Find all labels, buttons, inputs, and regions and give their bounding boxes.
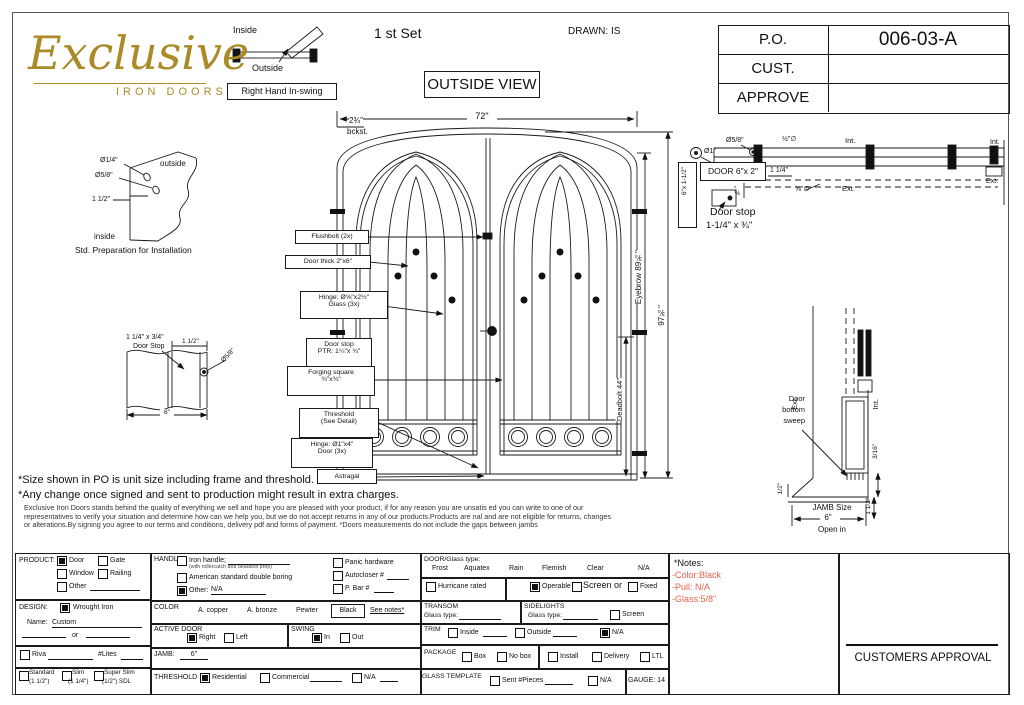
nobox-label: No box — [509, 653, 531, 661]
autocloser-field[interactable] — [387, 578, 409, 580]
commercial-label: Commercial — [272, 674, 309, 682]
checkbox-railing[interactable] — [98, 569, 108, 579]
head-ext-label-2: Ext. — [986, 178, 998, 186]
checkbox-gate[interactable] — [98, 556, 108, 566]
checkbox-product-other[interactable] — [57, 582, 67, 592]
note-para-1: Exclusive Iron Doors stands behind the q… — [24, 504, 583, 512]
checkbox-door[interactable] — [57, 556, 67, 566]
callout-door-stop: Door stop PTR: 1¼"x ¾" — [306, 338, 372, 368]
callout-hinge-main: Hinge: Ø1"x4" Door (3x) — [291, 438, 373, 468]
riva-label: Riva — [32, 651, 46, 659]
sill-int-label: Int. — [872, 399, 880, 409]
signature-line[interactable] — [846, 644, 998, 646]
door-option-label: Door — [69, 557, 84, 565]
riva-field[interactable] — [48, 658, 93, 660]
jamb-value[interactable]: 6" — [180, 651, 208, 660]
color-black-selected[interactable]: Black — [331, 604, 365, 618]
checkbox-handle-other[interactable] — [177, 586, 187, 596]
sill-dim-316: 3/16" — [873, 444, 880, 459]
cust-label: CUST. — [718, 61, 828, 78]
notes-title: *Notes: — [674, 558, 704, 568]
sill-dim-112: 1 1/2" — [866, 498, 873, 515]
pbar-field[interactable] — [374, 591, 394, 593]
head-int-label-2: Int. — [990, 139, 1000, 147]
head-door-label: DOOR 6"x 2" — [700, 162, 766, 181]
checkbox-fixed[interactable] — [628, 582, 638, 592]
checkbox-residential[interactable] — [200, 673, 210, 683]
checkbox-hurricane[interactable] — [426, 582, 436, 592]
jamb-label: JAMB: — [154, 651, 175, 659]
dim-eyebrow: Eyebrow 89¾" — [635, 250, 643, 304]
color-pewter[interactable]: Pewter — [296, 607, 318, 615]
checkbox-install[interactable] — [548, 652, 558, 662]
prep-dim-half: 1 1/2" — [92, 196, 110, 204]
note-pull: -Pull: N/A — [672, 582, 710, 592]
prep-dia-fiveeighth: Ø5/8" — [95, 172, 113, 180]
checkbox-box[interactable] — [462, 652, 472, 662]
wrought-iron-label: Wrought Iron — [73, 604, 113, 612]
box-label: Box — [474, 653, 486, 661]
handle-other-value[interactable]: N/A — [211, 586, 266, 595]
backset-caption: bckst. — [347, 128, 368, 137]
head-dia-58b: ⅝"∅ — [795, 186, 809, 194]
backset-dim: 2¾" — [349, 117, 363, 126]
sill-jamb-size-label: JAMB Size — [800, 504, 864, 513]
color-label: COLOR — [154, 604, 179, 612]
stopdetail-name: Door Stop — [133, 343, 165, 351]
sill-sweep-label: Door bottom sweep — [765, 393, 805, 426]
callout-door-thick: Door thick 2"x6" — [285, 255, 371, 269]
stopdetail-width: 6" — [160, 409, 174, 416]
product-other-label: Other — [69, 583, 87, 591]
drawn-label: DRAWN: IS — [568, 26, 620, 37]
threshold-na-field[interactable] — [380, 680, 398, 682]
checkbox-trim-na[interactable] — [600, 628, 610, 638]
trim-na-label: N/A — [612, 629, 624, 637]
right-label: Right — [199, 634, 215, 642]
checkbox-screen[interactable] — [572, 582, 582, 592]
checkbox-trim-outside[interactable] — [515, 628, 525, 638]
left-label: Left — [236, 634, 248, 642]
design-or-label: or — [72, 632, 78, 640]
dim-deadbolt: Deadbolt 44" — [616, 378, 624, 421]
trim-outside-label: Outside — [527, 629, 551, 637]
in-label: In — [324, 634, 330, 642]
install-label: Install — [560, 653, 578, 661]
checkbox-nobox[interactable] — [497, 652, 507, 662]
glass-template-label: GLASS TEMPLATE — [422, 673, 482, 681]
note-glass: -Glass:5/8" — [672, 594, 716, 604]
head-doorstop-size: 1-1/4" x ¾" — [706, 221, 752, 232]
sent-pieces-field[interactable] — [545, 683, 573, 685]
slim-label: Slim — [72, 669, 84, 676]
swing-inside-label: Inside — [233, 25, 257, 35]
checkbox-in[interactable] — [312, 633, 322, 643]
gauge-label: GAUGE: 14 — [628, 677, 665, 685]
checkbox-iron-handle[interactable] — [177, 556, 187, 566]
glass-flemish[interactable]: Flemish — [542, 565, 567, 573]
transom-label: TRANSOM — [424, 603, 458, 611]
threshold-label: THRESHOLD — [154, 674, 197, 682]
callout-hinge-small: Hinge: Ø⅝"x2½" Glass (3x) — [300, 291, 388, 319]
elevation-width-dim: 72" — [467, 111, 497, 121]
handle-other-label: Other: — [189, 587, 208, 595]
glass-type-label: DOOR/Glass type: — [424, 556, 480, 564]
checkbox-panic[interactable] — [333, 558, 343, 568]
checkbox-pbar[interactable] — [333, 584, 343, 594]
transom-glass-field[interactable] — [459, 618, 501, 620]
color-copper[interactable]: A. copper — [198, 607, 228, 615]
approval-box — [838, 553, 1010, 695]
swing-outside-label: Outside — [252, 63, 283, 73]
sidelights-glass-field[interactable] — [563, 618, 598, 620]
design-name-value[interactable]: Custom — [52, 619, 142, 628]
sidelights-glass-label: Glass type: — [528, 612, 562, 620]
ltl-label: LTL — [652, 653, 664, 661]
head-dim-114: 1 1/4" — [770, 167, 788, 175]
checkbox-right[interactable] — [187, 633, 197, 643]
sent-pieces-label: Sent #Pieces — [502, 677, 543, 685]
operable-label: Operable — [542, 583, 571, 591]
head-int-label: Int. — [845, 137, 855, 145]
checkbox-out[interactable] — [340, 633, 350, 643]
spec-sheet: Exclusive IRON DOORS Inside Outside Righ… — [0, 0, 1024, 705]
head-ext-label: Ext. — [842, 185, 855, 193]
callout-threshold: Threshold (See Detail) — [299, 408, 379, 438]
logo-script: Exclusive — [28, 28, 249, 80]
logo-subtitle: IRON DOORS — [116, 86, 227, 98]
checkbox-threshold-na[interactable] — [352, 673, 362, 683]
note-changes: *Any change once signed and sent to prod… — [18, 489, 399, 501]
customers-approval-label: CUSTOMERS APPROVAL — [838, 652, 1008, 665]
checkbox-wrought-iron[interactable] — [60, 603, 70, 613]
window-option-label: Window — [69, 570, 94, 578]
hurricane-label: Hurricane rated — [438, 583, 486, 591]
super-slim-sub: (1/2") SDL — [102, 678, 131, 685]
head-dia-58: Ø5/8" — [726, 137, 744, 145]
glass-na[interactable]: N/A — [638, 565, 650, 573]
glass-clear[interactable]: Clear — [587, 565, 604, 573]
prep-caption: Std. Preparation for Installation — [75, 246, 192, 256]
gate-option-label: Gate — [110, 557, 125, 565]
glass-aquatex[interactable]: Aquatex — [464, 565, 490, 573]
po-value: 006-03-A — [828, 29, 1008, 50]
product-other-field[interactable] — [90, 589, 140, 591]
approve-label: APPROVE — [718, 90, 828, 107]
pbar-label: P. Bar # — [345, 585, 369, 593]
head-dia-1: Ø1" — [704, 148, 716, 156]
lites-field[interactable] — [121, 658, 143, 660]
screen-or-label: Screen or — [583, 580, 622, 590]
checkbox-commercial[interactable] — [260, 673, 270, 683]
glass-rain[interactable]: Rain — [509, 565, 523, 573]
checkbox-american-boring[interactable] — [177, 573, 187, 583]
checkbox-sent-pieces[interactable] — [490, 676, 500, 686]
fixed-label: Fixed — [640, 583, 657, 591]
glass-frost[interactable]: Frost — [432, 565, 448, 573]
callout-flushbolt: Flushbolt (2x) — [295, 230, 369, 244]
color-bronze[interactable]: A. bronze — [247, 607, 277, 615]
checkbox-riva[interactable] — [20, 650, 30, 660]
color-see-notes[interactable]: See notes* — [370, 607, 404, 615]
standard-label: Standard — [29, 669, 55, 676]
design-name-label: Name: — [27, 619, 48, 627]
sidelight-screen-label: Screen — [622, 611, 644, 619]
product-label: PRODUCT: — [19, 557, 55, 565]
stopdetail-size: 1 1/4" x 3/4" — [126, 334, 164, 342]
prep-outside: outside — [160, 160, 186, 169]
sidelights-label: SIDELIGHTS — [524, 603, 564, 611]
note-size: *Size shown in PO is unit size including… — [18, 474, 314, 486]
railing-option-label: Railing — [110, 570, 131, 578]
trim-outside-field[interactable] — [553, 635, 577, 637]
prep-dia-quarter: Ø1/4" — [100, 157, 118, 165]
out-label: Out — [352, 634, 363, 642]
checkbox-delivery[interactable] — [592, 652, 602, 662]
lites-label: #Lites — [98, 651, 117, 659]
gt-na-label: N/A — [600, 677, 612, 685]
autocloser-label: Autocloser # — [345, 572, 384, 580]
checkbox-gt-na[interactable] — [588, 676, 598, 686]
design-label: DESIGN: — [19, 604, 48, 612]
checkbox-autocloser[interactable] — [333, 571, 343, 581]
sill-open-in-label: Open in — [800, 526, 864, 535]
sill-jamb-size-value: 6" — [818, 514, 838, 523]
swing-type-label: Right Hand In-swing — [227, 83, 337, 100]
prep-inside: inside — [94, 233, 115, 242]
checkbox-window[interactable] — [57, 569, 67, 579]
callout-astragal: Astragal — [317, 469, 377, 484]
logo-underline — [34, 83, 206, 84]
trim-inside-label: Inside — [460, 629, 479, 637]
trim-label: TRIM — [424, 626, 441, 634]
po-label: P.O. — [718, 32, 828, 49]
checkbox-left[interactable] — [224, 633, 234, 643]
trim-inside-field[interactable] — [483, 635, 507, 637]
checkbox-trim-inside[interactable] — [448, 628, 458, 638]
head-dim-38: ⅜" — [735, 186, 742, 195]
delivery-label: Delivery — [604, 653, 629, 661]
package-label: PACKAGE — [424, 649, 456, 657]
slim-sub: (1 1/4") — [68, 678, 88, 685]
head-jamb-label: 6"x 1-1/2" — [682, 167, 689, 195]
stopdetail-dim1: 1 1/2" — [182, 338, 199, 345]
head-dia-half: ½"∅ — [782, 136, 796, 144]
checkbox-standard[interactable] — [19, 671, 29, 681]
commercial-field[interactable] — [310, 680, 342, 682]
checkbox-operable[interactable] — [530, 582, 540, 592]
callout-forging: Forging square ¾"x¾" — [287, 366, 375, 396]
set-label: 1 st Set — [374, 26, 421, 42]
dim-height: 97¾" — [658, 305, 666, 326]
residential-label: Residential — [212, 674, 247, 682]
checkbox-ltl[interactable] — [640, 652, 650, 662]
american-boring-label: American standard double boring — [189, 574, 292, 582]
view-title: OUTSIDE VIEW — [424, 71, 540, 98]
threshold-na-label: N/A — [364, 674, 376, 682]
super-slim-label: Super Slim — [104, 669, 135, 676]
sill-dim-12: 1/2" — [778, 483, 785, 494]
panic-label: Panic hardware — [345, 559, 394, 567]
note-color: -Color:Black — [672, 570, 721, 580]
iron-handle-sub: (with rollercatch and deadbolt prep) — [189, 565, 272, 571]
note-para-3: or alterations.By signing you agree to o… — [24, 521, 538, 529]
head-doorstop-label: Door stop — [710, 207, 756, 219]
checkbox-sidelight-screen[interactable] — [610, 610, 620, 620]
standard-sub: (1 1/2") — [29, 678, 49, 685]
transom-glass-label: Glass type: — [424, 612, 458, 620]
